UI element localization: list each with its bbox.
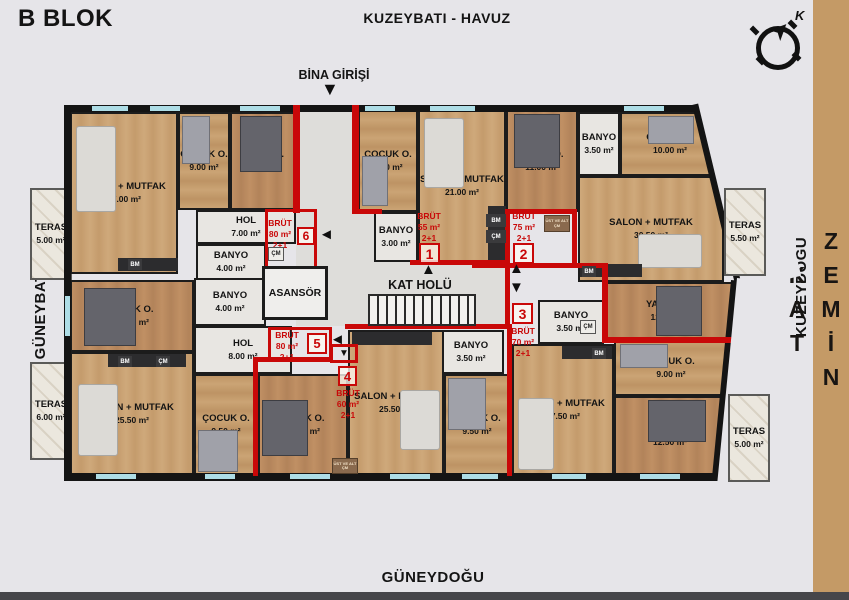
room-label: BANYO4.00 m²	[214, 250, 248, 273]
sofa-furniture	[638, 234, 702, 268]
exterior-wall	[64, 105, 71, 481]
terrace-area: 6.00 m²	[35, 412, 67, 423]
room-name: BANYO	[213, 290, 247, 302]
window-strip	[552, 474, 586, 479]
direction-arrow-icon: ▼	[509, 280, 529, 300]
brut-word: BRÜT	[500, 326, 546, 337]
terrace-name: TERAS	[733, 426, 765, 438]
room-area: 3.50 m²	[582, 145, 616, 156]
room-area: 4.00 m²	[214, 263, 248, 274]
unit-boundary-line	[253, 357, 258, 476]
brut-area: 55 m²	[405, 222, 453, 233]
room-area: 7.00 m²	[231, 228, 260, 239]
bed-furniture	[620, 344, 668, 368]
unit-number-badge: 5	[307, 333, 327, 354]
bed-furniture	[198, 430, 238, 472]
brut-plan: 2+1	[500, 233, 548, 244]
terrace-label: TERAS5.00 m²	[35, 222, 67, 245]
bed-furniture	[362, 156, 388, 206]
window-strip	[290, 474, 330, 479]
dishwasher-label: BM	[592, 348, 606, 359]
washer-label: ÇM	[580, 320, 596, 334]
brut-area: 80 m²	[268, 341, 306, 352]
unit-brut-label: BRÜT75 m²2+1	[500, 211, 548, 243]
room-label: HOL7.00 m²	[231, 215, 260, 238]
window-strip	[430, 106, 475, 111]
room-name: BANYO	[454, 340, 488, 352]
direction-arrow-icon: ▲	[509, 261, 529, 281]
room: BANYO4.00 m²	[196, 244, 266, 280]
room-label: BANYO4.00 m²	[213, 290, 247, 313]
unit-boundary-line	[602, 337, 734, 343]
terrace-area: 5.00 m²	[35, 235, 67, 246]
terrace-label: TERAS6.00 m²	[35, 399, 67, 422]
unit-brut-label: BRÜT70 m²2+1	[500, 326, 546, 358]
unit-boundary-line	[572, 209, 577, 265]
staircase	[368, 294, 476, 326]
window-strip	[92, 106, 128, 111]
sofa-furniture	[518, 398, 554, 470]
room-name: SALON + MUTFAK	[609, 217, 693, 229]
brut-word: BRÜT	[326, 388, 370, 399]
sofa-furniture	[400, 390, 440, 450]
room-name: BANYO	[582, 132, 616, 144]
bed-furniture	[84, 288, 136, 346]
terrace-label: TERAS5.50 m²	[729, 220, 761, 243]
sofa-furniture	[78, 384, 118, 456]
room-area: 3.50 m²	[454, 353, 488, 364]
sofa-furniture	[424, 118, 464, 188]
bed-furniture	[514, 114, 560, 168]
room-area: 9.00 m²	[647, 369, 695, 380]
kitchen-counter	[118, 258, 178, 271]
room-name: HOL	[228, 338, 257, 350]
room: BANYO3.50 m²	[438, 330, 504, 374]
terrace: TERAS5.50 m²	[724, 188, 766, 276]
unit-number-badge: 3	[512, 303, 533, 324]
room: BANYO4.00 m²	[194, 278, 266, 326]
room-area: 21.00 m²	[420, 187, 504, 198]
floorplan-page: B BLOK KUZEYBATI - HAVUZ GÜNEYDOĞU GÜNEY…	[0, 0, 849, 600]
window-strip	[462, 474, 498, 479]
entrance-lobby	[300, 107, 352, 212]
window-strip	[205, 474, 235, 479]
unit-number-badge: 4	[338, 366, 357, 386]
bed-furniture	[448, 378, 486, 430]
brut-plan: 2+1	[268, 352, 306, 363]
dishwasher-label: BM	[582, 266, 596, 277]
dishwasher-label: BM	[128, 259, 142, 270]
terrace-label: TERAS5.00 m²	[733, 426, 765, 449]
terrace-name: TERAS	[35, 222, 67, 234]
unit-brut-label: BRÜT80 m²2+1	[268, 330, 306, 362]
brut-plan: 2+1	[326, 410, 370, 421]
window-strip	[240, 106, 280, 111]
room-area: 4.00 m²	[213, 303, 247, 314]
terrace-area: 5.50 m²	[729, 233, 761, 244]
bed-furniture	[648, 400, 706, 442]
brut-word: BRÜT	[500, 211, 548, 222]
bed-furniture	[656, 286, 702, 336]
unit-boundary-line	[293, 105, 300, 213]
unit-brut-label: BRÜT55 m²2+1	[405, 211, 453, 243]
laundry-note-box: ÜST VE ALT ÇM	[544, 215, 570, 232]
elevator-label: ASANSÖR	[269, 287, 322, 299]
window-strip	[624, 106, 664, 111]
brut-word: BRÜT	[405, 211, 453, 222]
sofa-furniture	[76, 126, 116, 212]
unit-boundary-line	[602, 263, 608, 343]
unit-boundary-line	[352, 105, 359, 213]
room-area: 10.00 m²	[646, 145, 694, 156]
terrace-name: TERAS	[729, 220, 761, 232]
window-strip	[390, 474, 430, 479]
window-strip	[96, 474, 136, 479]
brut-word: BRÜT	[263, 218, 297, 229]
bed-furniture	[240, 116, 282, 172]
elevator-room: ASANSÖR	[262, 266, 328, 320]
washer-label: ÇM	[156, 356, 170, 367]
washer-label: ÇM	[268, 247, 284, 261]
dishwasher-label: BM	[118, 356, 132, 367]
unit-brut-label: BRÜT60 m²2+1	[326, 388, 370, 420]
kitchen-counter	[352, 332, 432, 345]
direction-arrow-icon: ◄	[319, 227, 339, 247]
laundry-note-box: ÜST VE ALT ÇM	[332, 458, 358, 474]
bed-furniture	[182, 116, 210, 164]
terrace-name: TERAS	[35, 399, 67, 411]
brut-area: 80 m²	[263, 229, 297, 240]
terrace: TERAS5.00 m²	[728, 394, 770, 482]
washer-label: ÇM	[486, 230, 506, 243]
window-strip	[150, 106, 180, 111]
direction-arrow-icon: ◄	[330, 332, 350, 352]
unit-boundary-line	[352, 209, 382, 214]
room-label: BANYO3.50 m²	[582, 132, 616, 155]
unit-number-badge: 6	[297, 227, 315, 245]
brut-area: 70 m²	[500, 337, 546, 348]
brut-word: BRÜT	[268, 330, 306, 341]
brut-plan: 2+1	[405, 233, 453, 244]
room-name: BANYO	[214, 250, 248, 262]
window-strip	[365, 106, 395, 111]
window-strip	[640, 474, 680, 479]
terrace-area: 5.00 m²	[733, 439, 765, 450]
brut-plan: 2+1	[500, 348, 546, 359]
window-strip	[65, 296, 70, 336]
room: BANYO3.50 m²	[578, 112, 620, 176]
dishwasher-label: BM	[486, 214, 506, 227]
room-name: ÇOCUK O.	[202, 413, 250, 425]
floor-hall-label: KAT HOLÜ	[368, 278, 472, 292]
bed-furniture	[262, 400, 308, 456]
room-label: BANYO3.50 m²	[454, 340, 488, 363]
brut-area: 60 m²	[326, 399, 370, 410]
brut-area: 75 m²	[500, 222, 548, 233]
bed-furniture	[648, 116, 694, 144]
room-name: HOL	[231, 215, 260, 227]
